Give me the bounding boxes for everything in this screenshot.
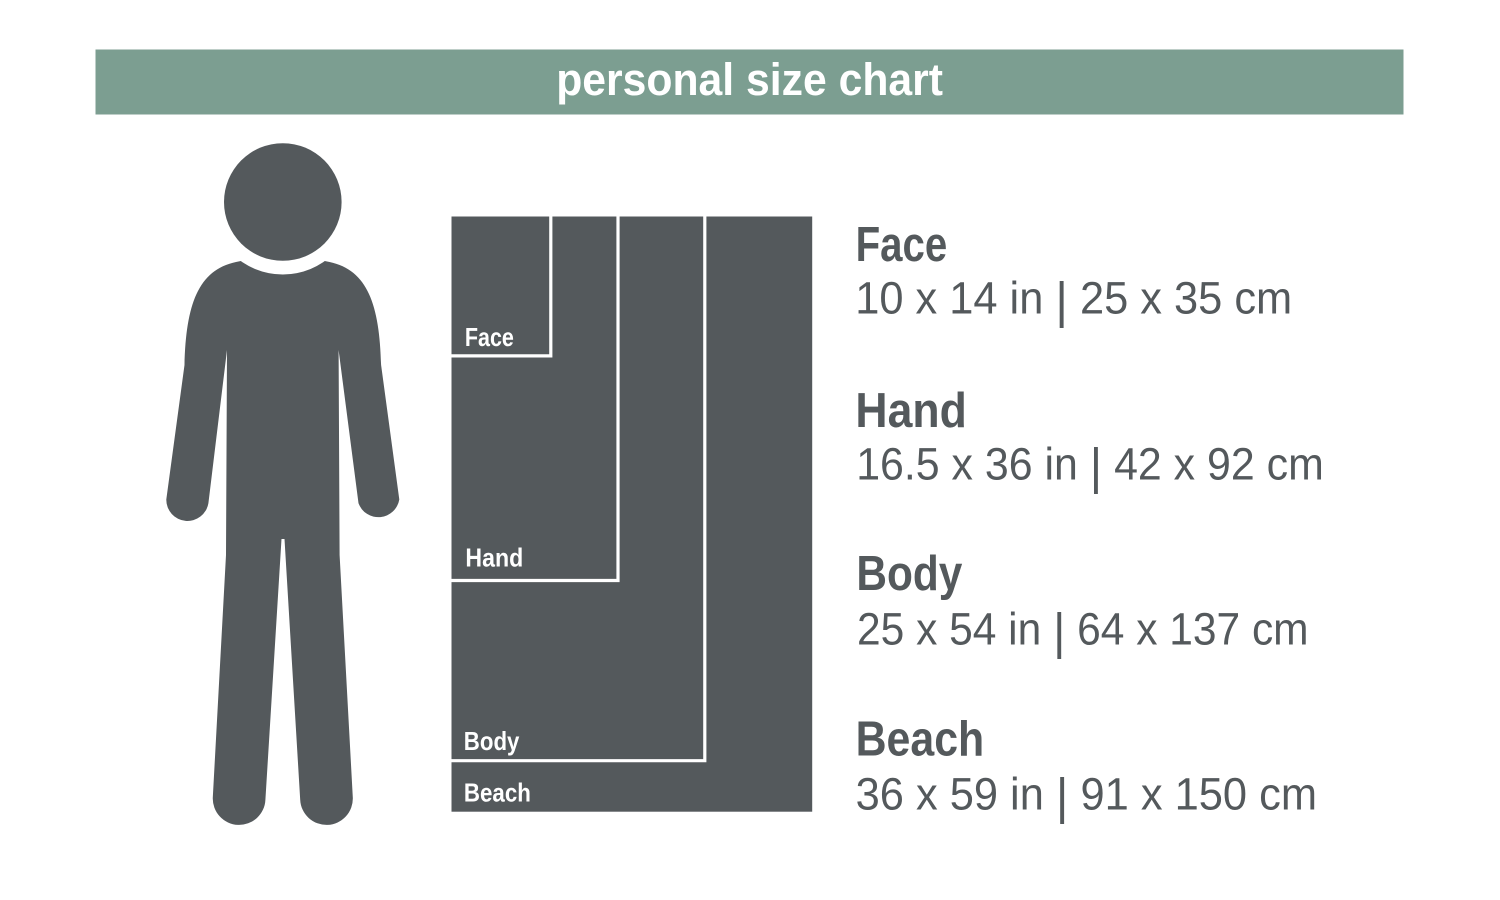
svg-text:Face: Face [465,322,514,352]
svg-text:10 x 14 in | 25 x 35 cm: 10 x 14 in | 25 x 35 cm [855,273,1292,329]
svg-text:personal size chart: personal size chart [556,54,943,105]
svg-text:Hand: Hand [465,543,523,573]
svg-text:Beach: Beach [856,713,985,767]
svg-text:Face: Face [856,218,948,272]
svg-text:Body: Body [464,726,520,756]
svg-text:25 x 54 in | 64 x 137 cm: 25 x 54 in | 64 x 137 cm [857,603,1309,659]
svg-text:36 x 59 in | 91 x 150 cm: 36 x 59 in | 91 x 150 cm [856,768,1317,824]
svg-text:16.5 x 36 in | 42 x 92 cm: 16.5 x 36 in | 42 x 92 cm [856,439,1324,495]
svg-text:Beach: Beach [464,778,531,808]
svg-text:Hand: Hand [855,384,966,438]
svg-text:Body: Body [856,547,962,601]
